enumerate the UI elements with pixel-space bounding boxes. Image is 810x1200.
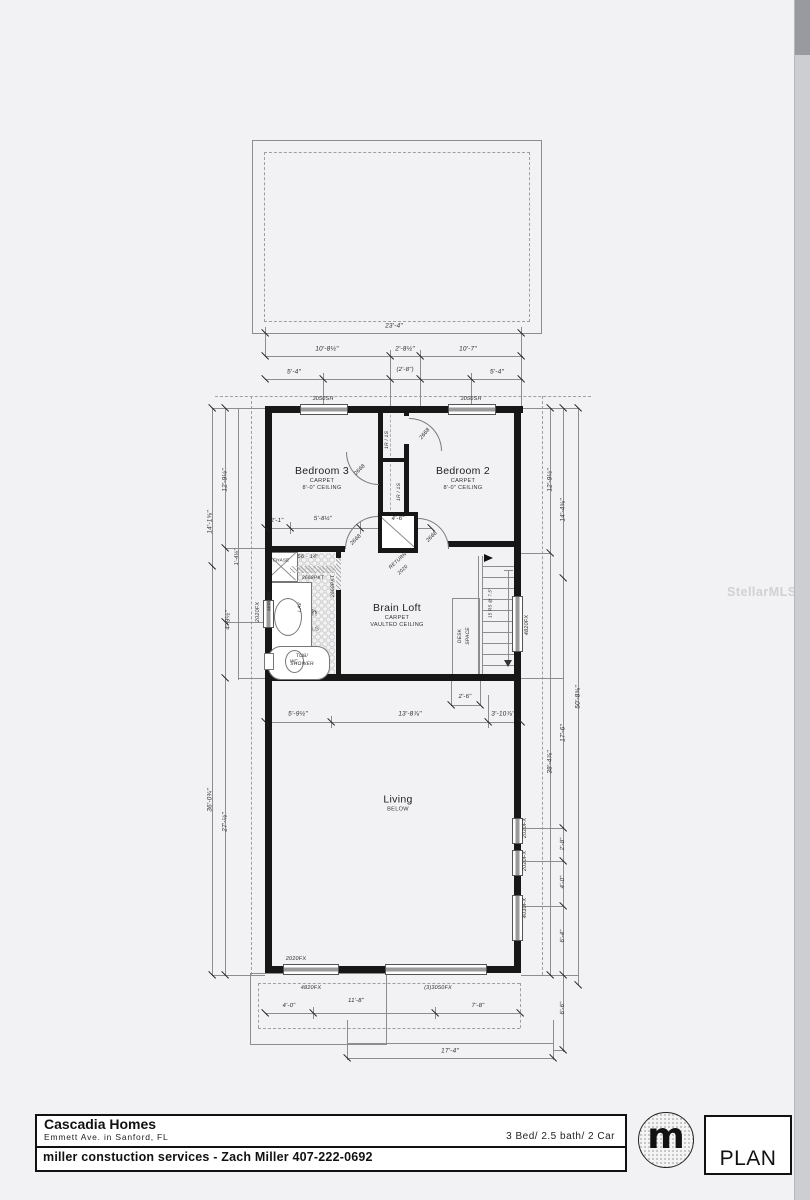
label-dim-bottom-3: 7'-8" xyxy=(471,1003,485,1009)
scrollbar-track[interactable] xyxy=(794,0,810,1200)
label-dim-left-bath: 4'-9½" xyxy=(225,610,232,630)
door-swing xyxy=(345,516,378,549)
room-bedroom3-ceiling: 8'-0" CEILING xyxy=(295,485,349,491)
wall xyxy=(265,546,345,552)
dim-line xyxy=(504,570,513,571)
label-dim-loft-3: 3'-10⅞" xyxy=(491,711,515,718)
label-desk-label-2: SPACE xyxy=(465,627,471,645)
label-tub-label-2: SHOWER xyxy=(290,661,314,667)
wall xyxy=(404,444,409,516)
label-dim-right-w3: 6'-4" xyxy=(560,929,566,943)
room-living-name: Living xyxy=(383,794,412,806)
label-tub-label-1: TUB/ xyxy=(296,653,309,659)
room-living: Living BELOW xyxy=(383,794,412,813)
room-loft-ceiling: VAULTED CEILING xyxy=(370,622,423,628)
label-dim-bath-3: 4'-6" xyxy=(391,516,405,522)
builder-name: Cascadia Homes xyxy=(44,1116,156,1132)
label-dim-bottom-1: 4'-0" xyxy=(282,1003,296,1009)
label-closet-bottom-label: 1R / 1S xyxy=(396,483,402,502)
label-dim-right-w1: 2'-8" xyxy=(560,837,566,851)
stair-tread xyxy=(482,566,514,567)
dim-line xyxy=(265,1013,520,1014)
dim-line xyxy=(521,327,522,406)
label-window-4820fx-stair: 4820FX xyxy=(524,614,530,635)
stair-tread xyxy=(482,577,514,578)
label-dim-overall-width: 23'-4" xyxy=(385,323,404,330)
label-stair-note: 15 RS @ 7.5" xyxy=(488,588,493,618)
closet-rod xyxy=(390,410,391,456)
dim-line xyxy=(265,356,523,357)
label-dim-left-living: 27'-½" xyxy=(222,812,229,832)
label-dim-bath-2: 5'-8½" xyxy=(314,516,333,522)
wall xyxy=(448,541,521,547)
contractor-info: miller constuction services - Zach Mille… xyxy=(43,1150,373,1164)
label-dim-porch: 17'-4" xyxy=(441,1048,460,1055)
label-dim-right-porch: 6'-6" xyxy=(560,1001,566,1015)
label-dim-top-mid: 2'-8½" xyxy=(395,346,415,353)
wall xyxy=(336,546,341,558)
label-door-bath-pocket-h: 2668PKT xyxy=(302,575,325,581)
wall xyxy=(404,406,409,416)
room-bedroom3: Bedroom 3 CARPET 8'-0" CEILING xyxy=(295,465,349,491)
miller-logo: m xyxy=(638,1112,694,1168)
room-bedroom3-name: Bedroom 3 xyxy=(295,465,349,477)
room-loft-finish: CARPET xyxy=(370,615,423,621)
scrollbar-thumb[interactable] xyxy=(795,0,810,55)
dim-line xyxy=(265,379,523,380)
label-window-2020fx-living2: 2020FX xyxy=(522,850,528,871)
label-dim-right-lower: 38'-4⅞" xyxy=(547,750,554,774)
pocket-door-symbol xyxy=(290,566,336,573)
window-symbol xyxy=(300,404,348,415)
stair-tread xyxy=(482,621,514,622)
label-dim-left-jog: 1'-4⅛" xyxy=(234,548,240,565)
dim-line xyxy=(451,705,480,706)
dim-line xyxy=(508,570,509,664)
stair-tread xyxy=(482,632,514,633)
label-dim-left-upper: 14'-1⅝" xyxy=(207,510,214,534)
label-door-bath-pocket-v: 2668PKT xyxy=(330,575,336,598)
label-dim-left-bed3: 12'-9½" xyxy=(222,468,229,492)
dim-line xyxy=(212,408,213,975)
stair-direction-flag xyxy=(484,554,493,562)
label-dim-bath-1: 2'-1" xyxy=(270,518,284,524)
roof-dashed-outline xyxy=(264,152,530,322)
dim-line xyxy=(225,408,226,975)
label-window-2020fx-living1: 2020FX xyxy=(522,817,528,838)
label-dim-stair: 2'-6" xyxy=(458,694,472,700)
room-loft: Brain Loft CARPET VAULTED CEILING xyxy=(370,602,423,628)
dim-line xyxy=(238,408,239,680)
label-dim-right-bed2: 12'-9½" xyxy=(547,468,554,492)
dim-line xyxy=(265,722,521,723)
room-living-note: BELOW xyxy=(383,807,412,813)
dim-line xyxy=(212,408,265,409)
label-lav-label: LAV xyxy=(297,602,303,612)
wall xyxy=(378,548,418,553)
wall xyxy=(336,590,341,680)
label-dim-win-left: 5'-4" xyxy=(287,369,302,376)
label-dim-win-right: 5'-4" xyxy=(490,369,505,376)
overhang-dashed-line xyxy=(258,983,259,1028)
window-symbol xyxy=(512,596,523,652)
room-loft-name: Brain Loft xyxy=(370,602,423,614)
room-bedroom2-ceiling: 8'-0" CEILING xyxy=(436,485,490,491)
label-dim-loft-2: 13'-8⅞" xyxy=(398,711,422,718)
room-bedroom2-name: Bedroom 2 xyxy=(436,465,490,477)
overhang-dashed-line xyxy=(520,983,521,1028)
room-bedroom2-finish: CARPET xyxy=(436,478,490,484)
label-window-4820fx-bottom: 4820FX xyxy=(300,985,321,991)
dim-line xyxy=(521,553,550,554)
dim-line xyxy=(347,1043,553,1044)
overhang-dashed-line xyxy=(258,1028,520,1029)
overhang-dashed-line xyxy=(215,396,591,397)
label-dim-loft-1: 5'-9½" xyxy=(288,711,308,718)
overhang-dashed-line xyxy=(258,983,520,984)
dim-line xyxy=(265,333,523,334)
label-dim-niche: 56 - 14" xyxy=(297,554,318,560)
dim-line xyxy=(451,681,452,705)
dim-line xyxy=(550,408,551,975)
label-dim-top-left: 10'-8½" xyxy=(315,346,339,353)
stellar-mls-watermark: StellarMLS xyxy=(727,585,797,599)
label-window-2020fx-bath: 2020FX xyxy=(255,601,261,622)
closet-rod xyxy=(390,464,391,510)
dim-line xyxy=(480,681,481,705)
window-symbol xyxy=(448,404,496,415)
wall xyxy=(378,458,409,462)
project-address: Emmett Ave. in Sanford, FL xyxy=(44,1132,169,1142)
label-mirror-label: MIRROR xyxy=(267,591,272,611)
dim-line xyxy=(553,1020,554,1060)
tub-faucet xyxy=(264,653,274,670)
overhang-dashed-line xyxy=(542,396,543,975)
label-dim-top-right: 10'-7" xyxy=(459,346,478,353)
label-dim-bottom-2: 11'-8" xyxy=(348,998,365,1004)
miller-logo-letter: m xyxy=(647,1119,685,1155)
label-dim-right-w2: 4'-0" xyxy=(560,875,566,889)
stair-down-arrow xyxy=(504,660,512,667)
label-dim-left-lower: 36'-0¾" xyxy=(207,788,214,812)
label-window-2020fx-bottom: 2020FX xyxy=(285,956,306,962)
label-chase-label: CHASE xyxy=(272,558,289,563)
sheet-title-box: PLAN xyxy=(704,1115,792,1175)
dim-line xyxy=(482,556,483,676)
sheet-title: PLAN xyxy=(720,1144,777,1173)
label-dim-right-upper: 14'-4⅝" xyxy=(560,498,567,522)
label-window-3050fx-bottom: (3)3050FX xyxy=(424,985,453,991)
floor-plan: Bedroom 3 CARPET 8'-0" CEILING Bedroom 2… xyxy=(0,0,810,1200)
label-desk-label-1: DESK xyxy=(457,628,463,643)
label-window-3050sh-left: 3050SH xyxy=(312,396,334,402)
dim-line xyxy=(521,678,563,679)
stair-tread xyxy=(482,654,514,655)
room-bedroom2: Bedroom 2 CARPET 8'-0" CEILING xyxy=(436,465,490,491)
label-dim-hall: (2'-8") xyxy=(396,367,414,373)
dim-line xyxy=(347,1058,553,1059)
label-window-3050sh-right: 3050SH xyxy=(460,396,482,402)
home-specs: 3 Bed/ 2.5 bath/ 2 Car xyxy=(415,1131,615,1142)
dim-line xyxy=(225,548,265,549)
floor-plan-page: Bedroom 3 CARPET 8'-0" CEILING Bedroom 2… xyxy=(0,0,810,1200)
window-symbol xyxy=(283,964,339,975)
window-symbol xyxy=(385,964,487,975)
dim-line xyxy=(478,556,479,676)
label-return-size: 2020 xyxy=(397,564,409,577)
label-dim-right-mid: 17'-6" xyxy=(560,724,567,743)
dim-line xyxy=(347,1020,348,1060)
room-bedroom3-finish: CARPET xyxy=(295,478,349,484)
wall xyxy=(265,406,272,973)
label-closet-top-label: 1R / 1S xyxy=(384,431,390,450)
overhang-dashed-line xyxy=(251,396,252,975)
stair-tread xyxy=(482,643,514,644)
label-dim-right-overall: 50'-8⅝" xyxy=(575,685,582,709)
dim-line xyxy=(238,678,265,679)
wall xyxy=(514,406,521,973)
dim-line xyxy=(212,975,265,976)
label-window-4030fx-living: 4030FX xyxy=(522,897,528,918)
pocket-door-symbol xyxy=(336,558,341,590)
wall xyxy=(378,512,382,552)
